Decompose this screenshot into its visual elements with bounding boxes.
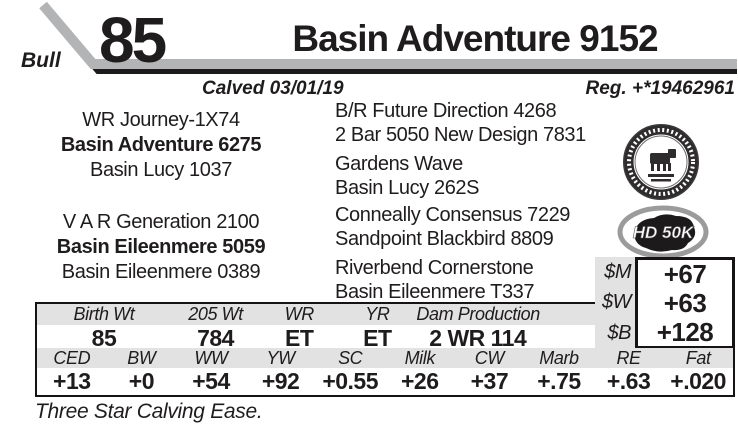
- col-header: CED: [37, 348, 107, 369]
- pedigree-line: B/R Future Direction 4268: [335, 99, 586, 123]
- sire-grandsire: WR Journey-1X74: [35, 108, 287, 133]
- dollar-value: +67: [664, 261, 707, 287]
- col-header: CW: [455, 348, 525, 369]
- calving-ease-footnote: Three Star Calving Ease.: [35, 400, 262, 424]
- hd50k-label: HD 50K: [633, 223, 695, 242]
- value-cell: +.020: [663, 368, 733, 395]
- dollar-label: $M: [604, 261, 631, 284]
- sire-ancestors-block: B/R Future Direction 4268 2 Bar 5050 New…: [335, 99, 586, 200]
- performance-header-row: Birth Wt 205 Wt WR YR Dam Production: [37, 304, 595, 325]
- sex-label: Bull: [21, 49, 61, 73]
- pedigree-line: Gardens Wave: [335, 152, 586, 176]
- dollar-index-values-box: +67 +63 +128: [635, 257, 735, 349]
- sire-granddam: Basin Lucy 1037: [35, 158, 287, 183]
- dollar-label: $W: [602, 291, 631, 314]
- calved-date: Calved 03/01/19: [202, 78, 344, 100]
- col-header: Milk: [385, 348, 455, 369]
- value-cell: +.75: [524, 368, 594, 395]
- col-header: YW: [246, 348, 316, 369]
- value-cell: +.63: [594, 368, 664, 395]
- pedigree-line: Conneally Consensus 7229: [335, 203, 570, 227]
- dam-grandsire: V A R Generation 2100: [35, 210, 287, 235]
- value-cell: +0: [107, 368, 177, 395]
- col-header: SC: [315, 348, 385, 369]
- value-cell: +13: [37, 368, 107, 395]
- pedigree-line: Basin Lucy 262S: [335, 176, 586, 200]
- col-header: WR: [260, 304, 338, 325]
- value-cell: +0.55: [315, 368, 385, 395]
- dollar-label: $B: [608, 322, 631, 345]
- col-header: Marb: [524, 348, 594, 369]
- dollar-value: +63: [664, 290, 707, 316]
- value-cell: +54: [176, 368, 246, 395]
- pedigree-line: Sandpoint Blackbird 8809: [335, 227, 570, 251]
- dam-name: Basin Eileenmere 5059: [35, 235, 287, 260]
- pedigree-line: Basin Eileenmere T337: [335, 280, 570, 304]
- angus-association-seal-icon: [621, 122, 701, 202]
- dam-ancestors-block: Conneally Consensus 7229 Sandpoint Black…: [335, 203, 570, 304]
- col-header: Birth Wt: [37, 304, 171, 325]
- value-cell: +26: [385, 368, 455, 395]
- col-header: Dam Production: [416, 304, 539, 325]
- col-header: WW: [176, 348, 246, 369]
- epd-header-row: CED BW WW YW SC Milk CW Marb RE Fat: [37, 348, 733, 368]
- dollar-value: +128: [657, 319, 714, 345]
- epd-values-row: +13 +0 +54 +92 +0.55 +26 +37 +.75 +.63 +…: [37, 368, 733, 395]
- dam-block: V A R Generation 2100 Basin Eileenmere 5…: [35, 210, 287, 285]
- performance-values-row: 85 784 ET ET 2 WR 114: [37, 325, 595, 347]
- col-header: RE: [594, 348, 664, 369]
- col-header: 205 Wt: [171, 304, 260, 325]
- hd50k-badge-icon: HD 50K: [616, 205, 710, 259]
- sire-name: Basin Adventure 6275: [35, 133, 287, 158]
- col-header: Fat: [663, 348, 733, 369]
- pedigree-line: Riverbend Cornerstone: [335, 256, 570, 280]
- registration-number: Reg. +*19462961: [400, 78, 735, 100]
- value-cell: +37: [455, 368, 525, 395]
- col-header: YR: [338, 304, 416, 325]
- catalog-page: 85 Bull Basin Adventure 9152 Calved 03/0…: [0, 0, 738, 435]
- pedigree-line: 2 Bar 5050 New Design 7831: [335, 123, 586, 147]
- lot-number: 85: [99, 8, 164, 72]
- sire-block: WR Journey-1X74 Basin Adventure 6275 Bas…: [35, 108, 287, 183]
- value-cell: +92: [246, 368, 316, 395]
- dam-granddam: Basin Eileenmere 0389: [35, 260, 287, 285]
- col-header: BW: [107, 348, 177, 369]
- dollar-index-labels: $M $W $B: [595, 257, 635, 349]
- animal-name-title: Basin Adventure 9152: [230, 18, 720, 60]
